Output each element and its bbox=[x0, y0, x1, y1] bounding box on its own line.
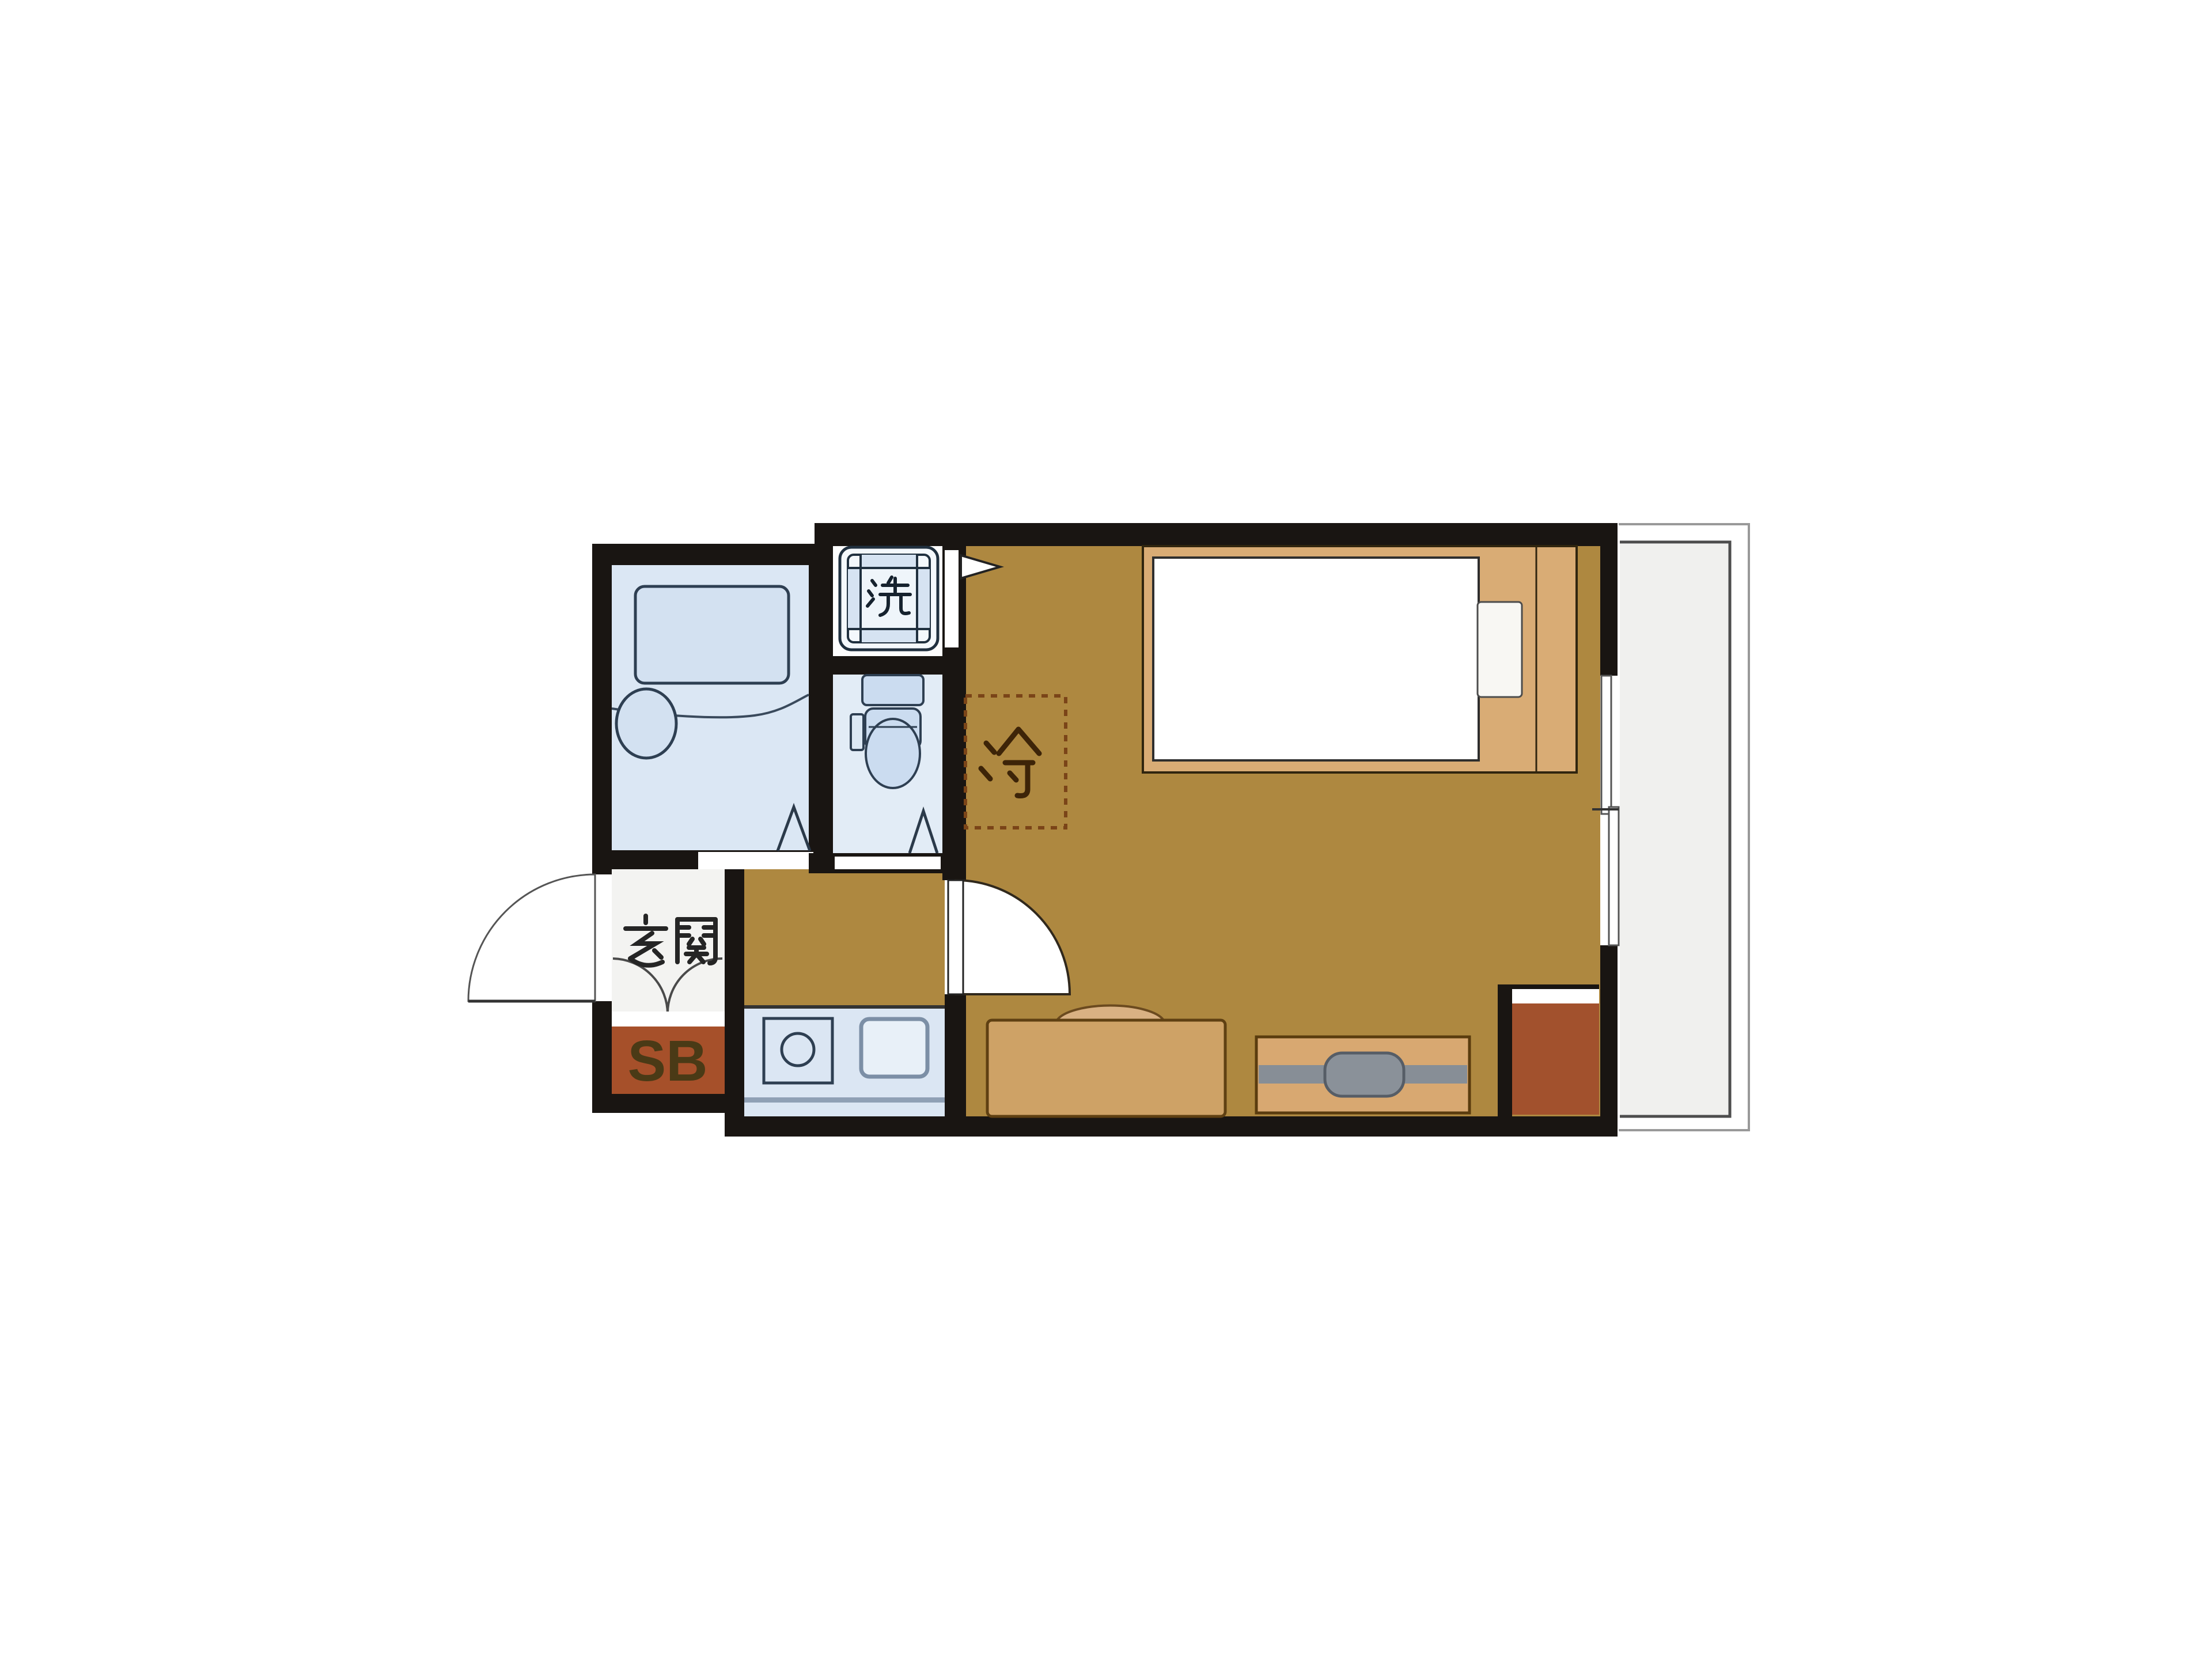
svg-text:SB: SB bbox=[628, 1029, 708, 1093]
